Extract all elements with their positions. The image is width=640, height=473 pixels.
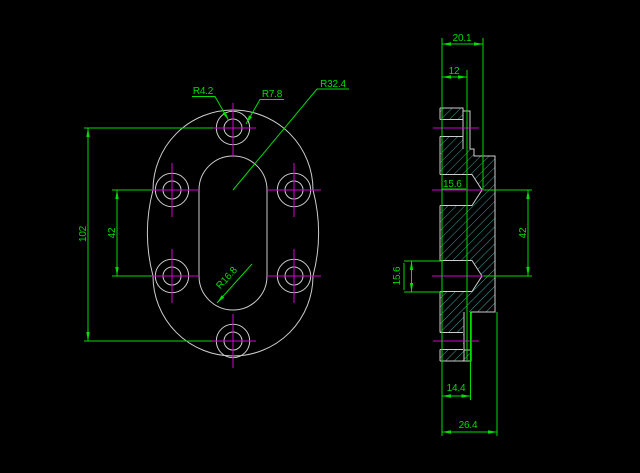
- dim-upper-bore-label[interactable]: 15.6: [443, 179, 462, 190]
- dim-hub-depth-label[interactable]: 20.1: [453, 33, 472, 44]
- dim-plate-thickness-label[interactable]: 12: [449, 66, 460, 77]
- dim-lower-bore-label[interactable]: 15.6: [392, 266, 403, 285]
- dim-boss-radius[interactable]: R7.8: [246, 89, 284, 124]
- dim-outer-radius-label[interactable]: R32.4: [320, 79, 346, 90]
- dim-slot-radius-label[interactable]: R16.8: [214, 265, 240, 292]
- dim-overall-height-label[interactable]: 102: [78, 225, 89, 242]
- dim-boss-depth-label[interactable]: 14.4: [447, 383, 466, 394]
- dim-bolt-hole-radius-label[interactable]: R4.2: [193, 86, 214, 97]
- dim-slot-radius[interactable]: R16.8: [214, 264, 252, 303]
- dim-plate-thickness[interactable]: 12: [442, 66, 467, 79]
- cad-viewport[interactable]: 102 42 R4.2 R7.8 R32.4: [0, 0, 640, 473]
- dim-boss-depth[interactable]: 14.4: [442, 383, 471, 398]
- dim-upper-bore[interactable]: 15.6: [442, 179, 466, 190]
- dim-hole-spacing-front-label[interactable]: 42: [107, 227, 118, 238]
- drawing-canvas[interactable]: 102 42 R4.2 R7.8 R32.4: [0, 0, 640, 473]
- dim-boss-radius-label[interactable]: R7.8: [262, 89, 283, 100]
- dim-lower-bore[interactable]: 15.6: [392, 261, 413, 292]
- center-slot: [199, 156, 267, 310]
- dim-total-depth[interactable]: 26.4: [442, 420, 497, 434]
- front-view[interactable]: 102 42 R4.2 R7.8 R32.4: [78, 79, 349, 368]
- dim-hole-spacing-front[interactable]: 42: [107, 190, 152, 276]
- dim-hub-depth[interactable]: 20.1: [442, 33, 483, 46]
- section-view[interactable]: 20.1 12 15.6 15.6 42: [392, 33, 532, 436]
- hole-centerlines: [145, 103, 321, 368]
- dim-bore-spacing-label[interactable]: 42: [518, 227, 529, 238]
- dim-overall-height[interactable]: 102: [78, 128, 213, 341]
- dim-bore-spacing[interactable]: 42: [518, 190, 530, 276]
- dim-total-depth-label[interactable]: 26.4: [459, 420, 478, 431]
